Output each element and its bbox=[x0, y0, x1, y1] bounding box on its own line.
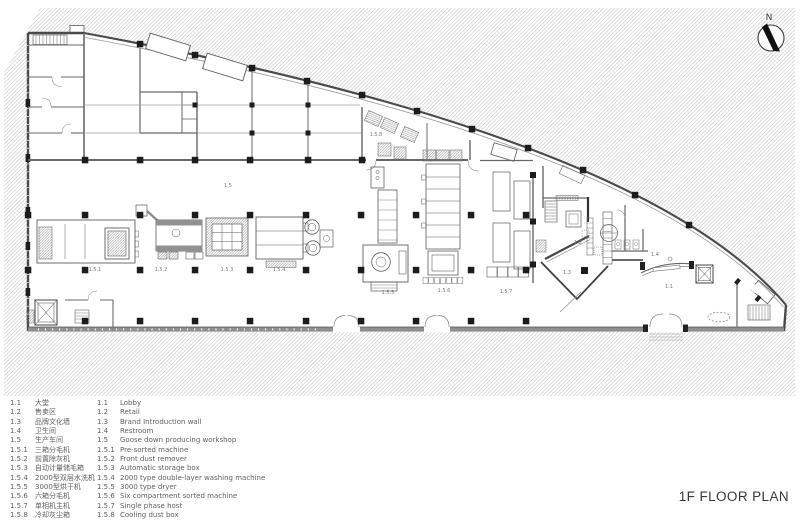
legend-en: Lobby bbox=[120, 399, 430, 408]
room-label: 1.5.5 bbox=[382, 290, 395, 296]
legend-zh: 三箱分毛机 bbox=[35, 446, 97, 455]
legend-num: 1.5.4 bbox=[97, 474, 120, 483]
legend: 1.1大堂1.1Lobby 1.2售卖区1.2Retail 1.3品牌文化墙1.… bbox=[10, 399, 430, 520]
room-label: 1.5.8 bbox=[370, 132, 383, 138]
room-label: 1.5 bbox=[224, 183, 232, 189]
legend-en: Single phase host bbox=[120, 502, 430, 511]
floor-plan-drawing: 1.5 1.5.1 1.5.2 1.5.3 1.5.4 1.5.5 1.5.6 … bbox=[0, 0, 800, 398]
legend-num: 1.5.6 bbox=[97, 492, 120, 501]
legend-zh: 卫生间 bbox=[35, 427, 97, 436]
legend-num: 1.1 bbox=[10, 399, 35, 408]
legend-num: 1.5.5 bbox=[97, 483, 120, 492]
room-label: 1.5.1 bbox=[89, 267, 102, 273]
legend-row: 1.2售卖区1.2Retail bbox=[10, 408, 430, 417]
machine-storage-box-1-5-3 bbox=[206, 218, 248, 256]
floor-plan: 1.5 1.5.1 1.5.2 1.5.3 1.5.4 1.5.5 1.5.6 … bbox=[0, 0, 800, 398]
legend-num: 1.5.3 bbox=[97, 464, 120, 473]
room-label: 1.3 bbox=[563, 270, 571, 276]
drawing-title: 1F FLOOR PLAN bbox=[679, 489, 789, 504]
legend-row: 1.5.1三箱分毛机1.5.1Pre-sorted machine bbox=[10, 446, 430, 455]
legend-zh: 2000型双层水洗机 bbox=[35, 474, 97, 483]
legend-row: 1.5生产车间1.5Goose down producing workshop bbox=[10, 436, 430, 445]
legend-row: 1.5.2前置除灰机1.5.2Front dust remover bbox=[10, 455, 430, 464]
legend-num: 1.2 bbox=[97, 408, 120, 417]
room-label: 1.5.6 bbox=[438, 288, 451, 294]
legend-en: Six compartment sorted machine bbox=[120, 492, 430, 501]
legend-num: 1.5.2 bbox=[10, 455, 35, 464]
legend-en: Brand Introduction wall bbox=[120, 418, 430, 427]
legend-row: 1.5.53000型烘干机1.5.53000 type dryer bbox=[10, 483, 430, 492]
room-label: 1.5.4 bbox=[273, 267, 286, 273]
elevator-lobby bbox=[696, 265, 713, 283]
room-label: 1.4 bbox=[651, 252, 659, 258]
legend-row: 1.5.6六箱分毛机1.5.6Six compartment sorted ma… bbox=[10, 492, 430, 501]
room-label: 1.5.2 bbox=[155, 267, 168, 273]
legend-row: 1.5.42000型双层水洗机1.5.42000 type double-lay… bbox=[10, 474, 430, 483]
legend-num: 1.1 bbox=[97, 399, 120, 408]
legend-num: 1.5.3 bbox=[10, 464, 35, 473]
stair-top-left bbox=[33, 35, 67, 45]
legend-zh: 自动计量储毛箱 bbox=[35, 464, 97, 473]
legend-num: 1.3 bbox=[10, 418, 35, 427]
legend-num: 1.5.4 bbox=[10, 474, 35, 483]
legend-num: 1.4 bbox=[97, 427, 120, 436]
legend-en: Automatic storage box bbox=[120, 464, 430, 473]
legend-zh: 六箱分毛机 bbox=[35, 492, 97, 501]
legend-num: 1.5.5 bbox=[10, 483, 35, 492]
room-label: 1.1 bbox=[665, 284, 673, 290]
legend-num: 1.3 bbox=[97, 418, 120, 427]
stair-southeast bbox=[748, 305, 770, 320]
legend-en: Pre-sorted machine bbox=[120, 446, 430, 455]
legend-zh: 单相机主机 bbox=[35, 502, 97, 511]
legend-row: 1.3品牌文化墙1.3Brand Introduction wall bbox=[10, 418, 430, 427]
legend-num: 1.5.6 bbox=[10, 492, 35, 501]
legend-en: Restroom bbox=[120, 427, 430, 436]
legend-num: 1.5 bbox=[97, 436, 120, 445]
legend-row: 1.1大堂1.1Lobby bbox=[10, 399, 430, 408]
legend-zh: 品牌文化墙 bbox=[35, 418, 97, 427]
legend-zh: 生产车间 bbox=[35, 436, 97, 445]
stair-retail bbox=[545, 201, 557, 222]
legend-num: 1.5.1 bbox=[97, 446, 120, 455]
legend-en: Goose down producing workshop bbox=[120, 436, 430, 445]
room-label: 1.5.7 bbox=[500, 289, 513, 295]
legend-num: 1.2 bbox=[10, 408, 35, 417]
legend-num: 1.5.2 bbox=[97, 455, 120, 464]
room-label: 1.2 bbox=[574, 240, 582, 246]
legend-en: Retail bbox=[120, 408, 430, 417]
legend-row: 1.4卫生间1.4Restroom bbox=[10, 427, 430, 436]
legend-num: 1.5 bbox=[10, 436, 35, 445]
north-label: N bbox=[766, 13, 773, 23]
legend-zh: 前置除灰机 bbox=[35, 455, 97, 464]
legend-num: 1.5.7 bbox=[10, 502, 35, 511]
room-label: 1.5.3 bbox=[221, 267, 234, 273]
legend-num: 1.4 bbox=[10, 427, 35, 436]
legend-en: 2000 type double-layer washing machine bbox=[120, 474, 430, 483]
legend-num: 1.5.1 bbox=[10, 446, 35, 455]
legend-en: 3000 type dryer bbox=[120, 483, 430, 492]
legend-num: 1.5.7 bbox=[97, 502, 120, 511]
main-entrance bbox=[647, 326, 684, 332]
legend-zh: 售卖区 bbox=[35, 408, 97, 417]
legend-en: Front dust remover bbox=[120, 455, 430, 464]
legend-row: 1.5.7单相机主机1.5.7Single phase host bbox=[10, 502, 430, 511]
legend-row: 1.5.3自动计量储毛箱1.5.3Automatic storage box bbox=[10, 464, 430, 473]
legend-zh: 大堂 bbox=[35, 399, 97, 408]
